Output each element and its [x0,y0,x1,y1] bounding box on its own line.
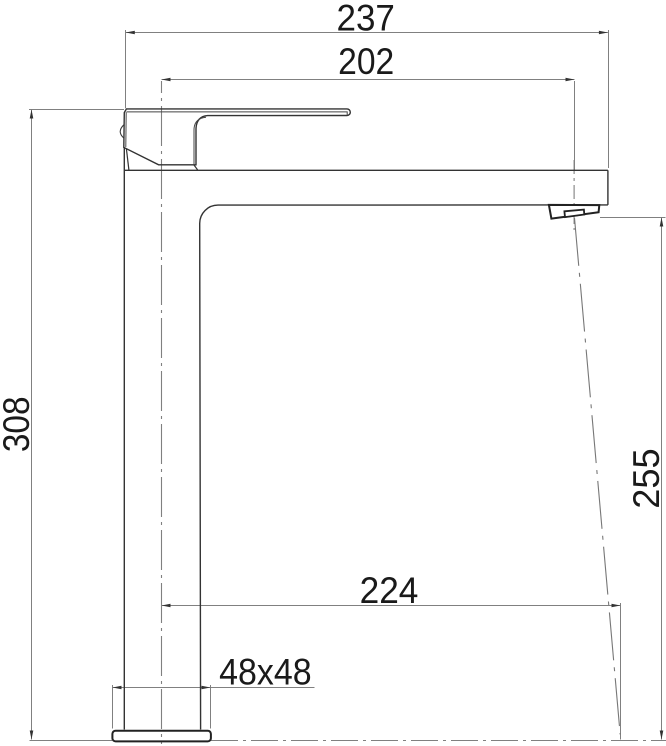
svg-text:202: 202 [338,41,394,82]
svg-text:255: 255 [626,448,666,508]
svg-text:48x48: 48x48 [219,651,312,692]
